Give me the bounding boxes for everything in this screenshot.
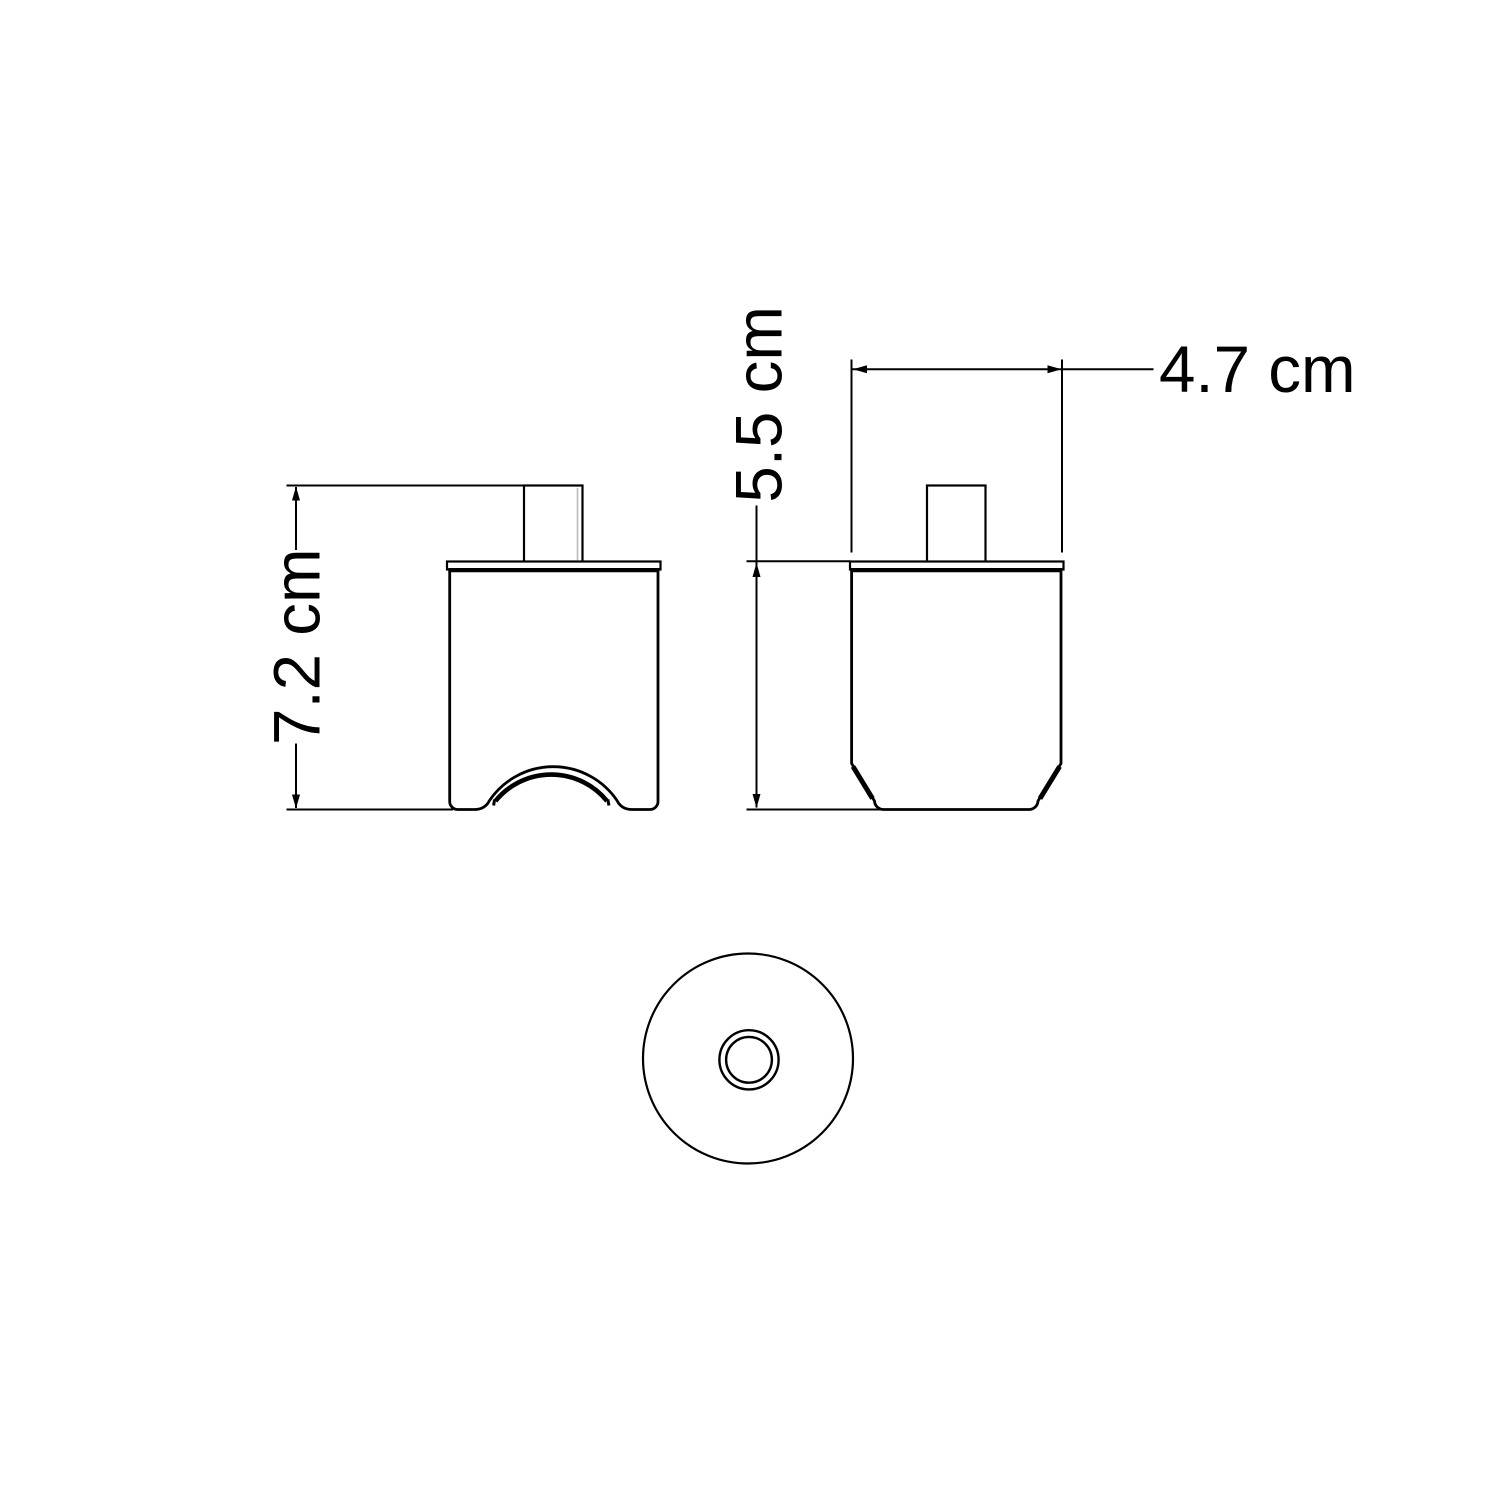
svg-text:7.2 cm: 7.2 cm: [261, 548, 334, 745]
svg-text:5.5 cm: 5.5 cm: [723, 306, 796, 503]
svg-text:4.7 cm: 4.7 cm: [1159, 333, 1356, 406]
